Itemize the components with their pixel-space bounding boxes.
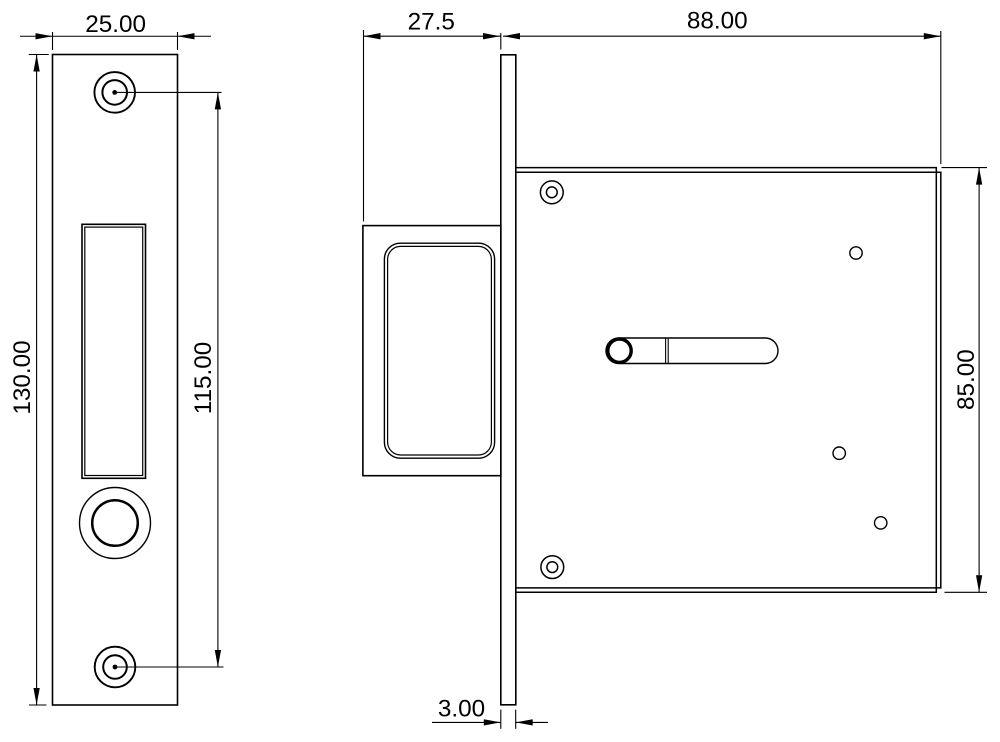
svg-text:130.00: 130.00 [9, 340, 36, 414]
svg-text:3.00: 3.00 [438, 695, 485, 722]
svg-text:88.00: 88.00 [687, 8, 748, 35]
svg-text:27.5: 27.5 [408, 9, 455, 36]
svg-text:25.00: 25.00 [85, 11, 146, 38]
svg-text:115.00: 115.00 [190, 342, 217, 415]
svg-text:85.00: 85.00 [953, 349, 980, 410]
